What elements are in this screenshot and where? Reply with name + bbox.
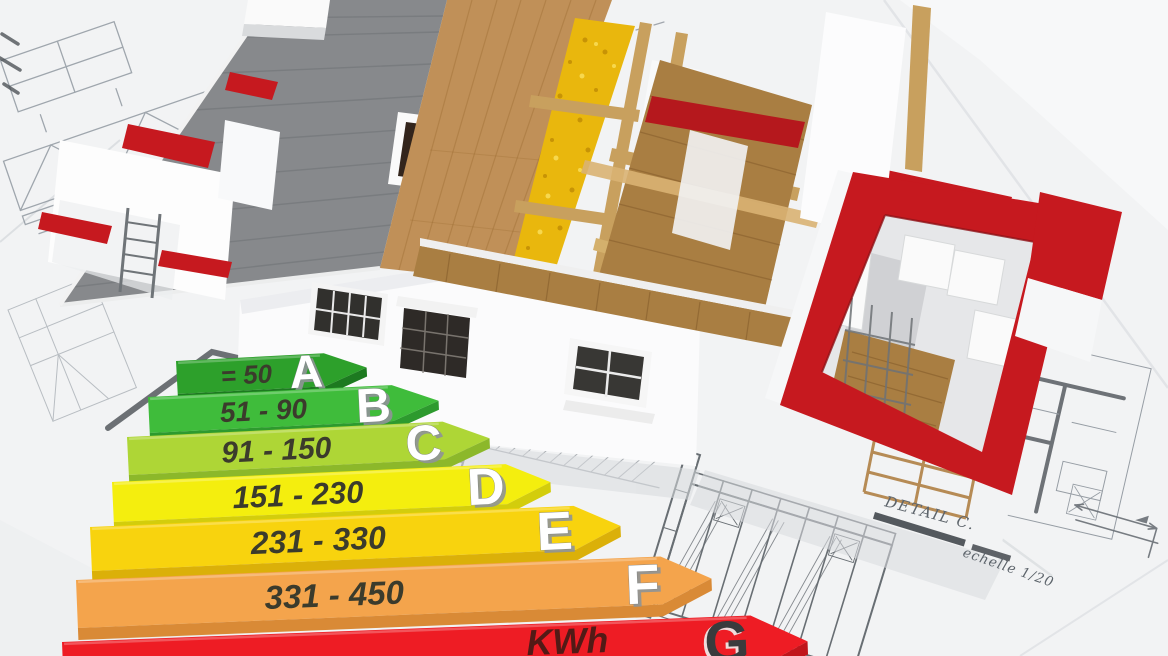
chimney-block (242, 0, 330, 40)
energy-letter: C (404, 414, 443, 472)
energy-range-label: 151 - 230 (232, 474, 364, 515)
construction-render-scene: DETAIL C. echelle 1/20 = 50AA51 - 90BB91… (0, 0, 1168, 656)
energy-range-label: 51 - 90 (219, 393, 308, 428)
energy-range-label: 331 - 450 (264, 573, 405, 616)
energy-letter: D (466, 457, 506, 517)
energy-range-label: 231 - 330 (249, 519, 387, 561)
energy-letter: E (535, 501, 574, 563)
energy-letter: F (624, 552, 661, 616)
energy-range-label: = 50 (220, 358, 273, 391)
energy-unit-label: KWh (526, 619, 609, 656)
energy-range-label: 91 - 150 (221, 431, 333, 469)
energy-letter: G (703, 609, 751, 656)
